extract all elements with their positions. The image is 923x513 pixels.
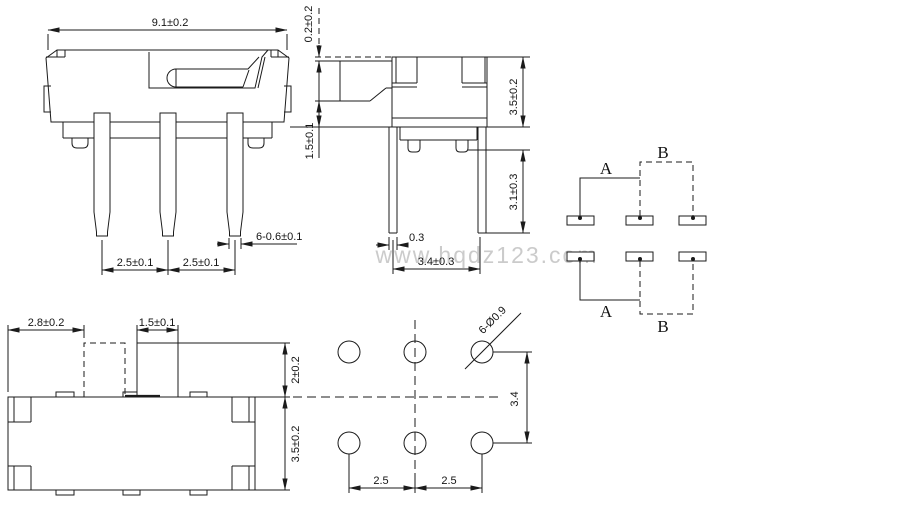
circuit-label-b-bottom: B [657,317,668,336]
footprint-hole [471,432,493,454]
circuit-diagram: A B A B [567,143,706,336]
side-leglength-ext-lines [468,150,530,233]
topview-corner-blocks [8,397,255,490]
front-width-dim-label: 9.1±0.2 [152,17,189,29]
side-legthickness-dim-label: 0.3 [409,232,424,244]
side-legs [389,127,486,233]
footprint-rowpitch-dim-label: 3.4 [509,391,521,406]
circuit-label-a-bottom: A [600,302,613,321]
circuit-node-dot [691,257,695,261]
topview-knob [137,343,178,397]
footprint-hole [338,432,360,454]
side-legspan-dim-label: 3.4±0.3 [418,256,455,268]
topview-right-ext-lines [178,343,290,490]
circuit-label-b-top: B [657,143,668,162]
watermark-text: www.hqdz123.com [374,242,598,268]
topview-knobheight-dim-label: 2±0.2 [290,356,302,383]
front-pins [94,113,243,236]
footprint-pitch2-dim-label: 2.5 [441,475,456,487]
footprint-hole-dim-label: 6-Ø0.9 [477,304,509,336]
side-seat-dim-label: 1.5±0.1 [304,123,316,160]
front-pitch2-dim-label: 2.5±0.1 [183,257,220,269]
footprint-pitch1-dim-label: 2.5 [373,475,388,487]
footprint-hole [338,341,360,363]
side-body [389,57,487,127]
topview-knobwidth-dim-label: 1.5±0.1 [139,317,176,329]
drawing-svg: www.hqdz123.com 9.1±0.2 2.5±0.1 2.5±0.1 … [0,0,923,513]
front-view: 9.1±0.2 2.5±0.1 2.5±0.1 6-0.6±0.1 [44,17,302,275]
circuit-node-dot [638,257,642,261]
footprint-centerlines [293,320,503,473]
top-view: 2.8±0.2 1.5±0.1 2±0.2 3.5±0.2 [8,317,302,495]
footprint-pitch-ext-lines [349,454,482,493]
topview-body [8,397,255,490]
circuit-node-dot [691,216,695,220]
side-view: 0.2±0.2 1.5±0.1 3.5±0.2 3.1±0.3 0.3 3.4±… [290,6,530,274]
circuit-node-dot [638,216,642,220]
topview-offset-dim-label: 2.8±0.2 [28,317,65,329]
circuit-solid-links [580,178,640,300]
circuit-node-dot [578,216,582,220]
front-pitch1-dim-label: 2.5±0.1 [117,257,154,269]
circuit-label-a-top: A [600,159,613,178]
front-body-outline [46,50,289,122]
topview-offset-ext-lines [8,325,84,392]
side-base-and-feet [400,127,477,152]
topview-knob-alt-position [84,343,125,397]
engineering-drawing: www.hqdz123.com 9.1±0.2 2.5±0.1 2.5±0.1 … [0,0,923,513]
side-knob [315,61,392,101]
topview-pin-tabs [56,392,207,495]
side-height-dim-label: 3.5±0.2 [508,79,520,116]
footprint-view: 6-Ø0.9 3.4 2.5 2.5 [293,304,532,493]
front-side-tabs [44,86,291,112]
front-pinwidth-dim-label: 6-0.6±0.1 [256,231,302,243]
front-slider-knob [149,50,268,88]
circuit-node-dot [578,257,582,261]
front-width-ext-lines [48,34,287,50]
topview-depth-dim-label: 3.5±0.2 [290,426,302,463]
circuit-dashed-links [640,162,693,314]
side-travel-dim-label: 0.2±0.2 [303,6,315,43]
side-leglength-dim-label: 3.1±0.3 [508,174,520,211]
circuit-pads [567,216,706,261]
side-top-ref-dashed [315,8,392,57]
